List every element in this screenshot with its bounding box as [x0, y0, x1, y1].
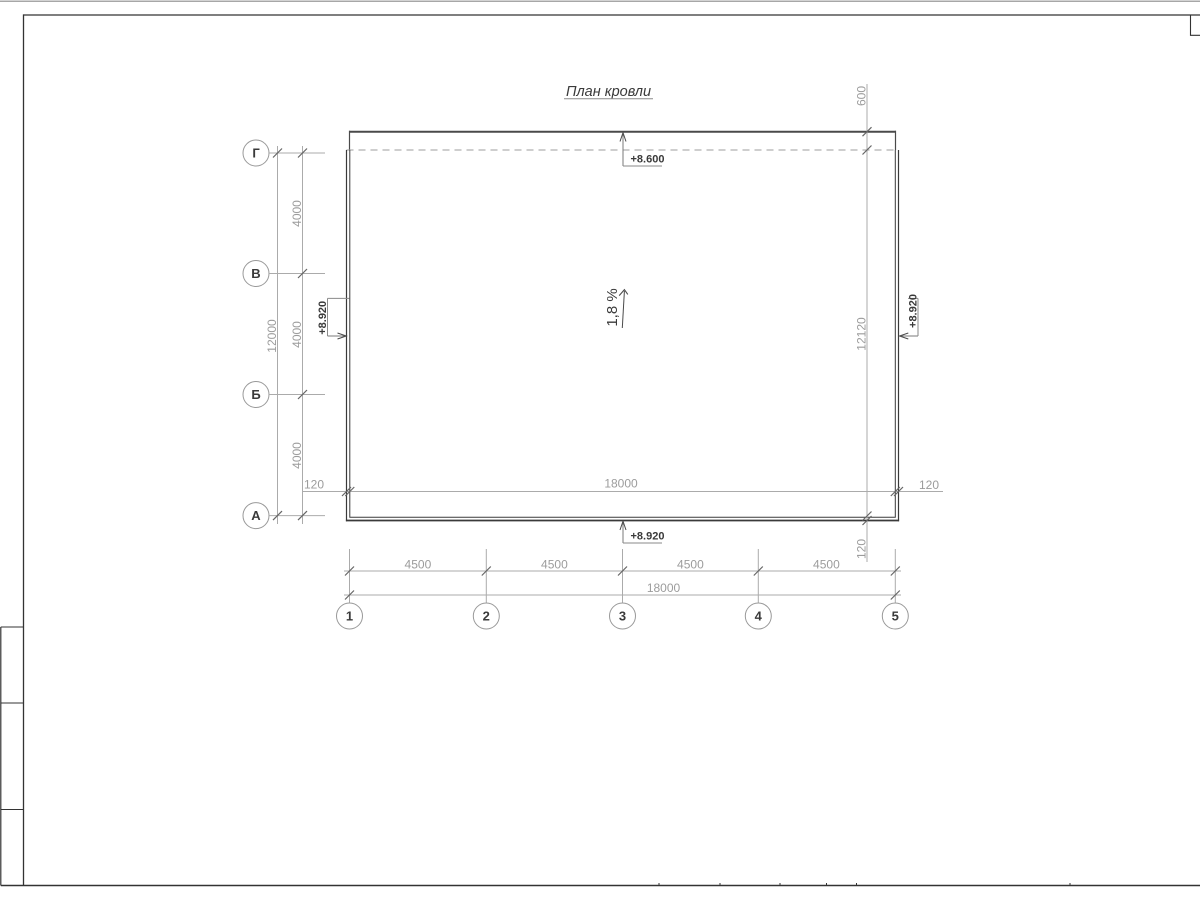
svg-text:План кровли: План кровли — [566, 84, 651, 100]
svg-text:4000: 4000 — [290, 321, 304, 348]
svg-text:12000: 12000 — [265, 319, 279, 353]
svg-text:120: 120 — [854, 539, 868, 559]
svg-text:120: 120 — [919, 478, 939, 492]
svg-text:4500: 4500 — [677, 558, 704, 572]
svg-text:18000: 18000 — [647, 581, 681, 595]
svg-text:1: 1 — [346, 609, 353, 624]
svg-text:+8.920: +8.920 — [908, 294, 920, 328]
svg-text:18000: 18000 — [604, 477, 638, 491]
svg-text:Б: Б — [251, 387, 260, 402]
svg-text:600: 600 — [854, 86, 868, 106]
svg-text:12120: 12120 — [854, 317, 868, 351]
svg-text:Г: Г — [252, 146, 260, 161]
svg-text:120: 120 — [304, 478, 324, 492]
svg-text:В: В — [251, 266, 260, 281]
svg-text:+8.600: +8.600 — [631, 154, 665, 166]
svg-text:4500: 4500 — [813, 558, 840, 572]
svg-text:+8.920: +8.920 — [317, 301, 329, 335]
svg-text:4: 4 — [755, 609, 763, 624]
svg-text:А: А — [251, 508, 261, 523]
svg-text:1,8 %: 1,8 % — [604, 288, 621, 326]
svg-text:5: 5 — [892, 609, 899, 624]
svg-text:4000: 4000 — [290, 200, 304, 227]
svg-text:2: 2 — [483, 609, 490, 624]
svg-text:4500: 4500 — [541, 558, 568, 572]
svg-text:4500: 4500 — [405, 558, 432, 572]
svg-text:4000: 4000 — [290, 442, 304, 469]
svg-text:3: 3 — [619, 609, 626, 624]
svg-text:+8.920: +8.920 — [631, 531, 665, 543]
